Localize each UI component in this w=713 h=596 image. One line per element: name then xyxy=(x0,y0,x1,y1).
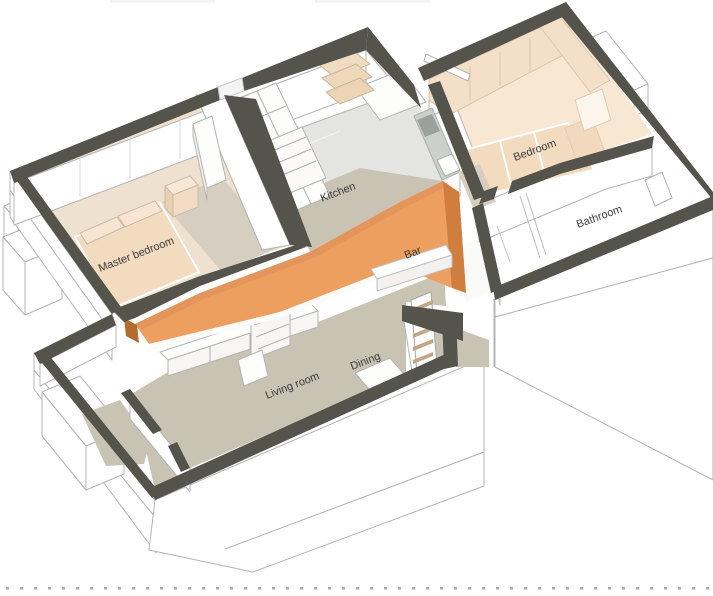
svg-text:Bathroom: Bathroom xyxy=(575,203,624,231)
